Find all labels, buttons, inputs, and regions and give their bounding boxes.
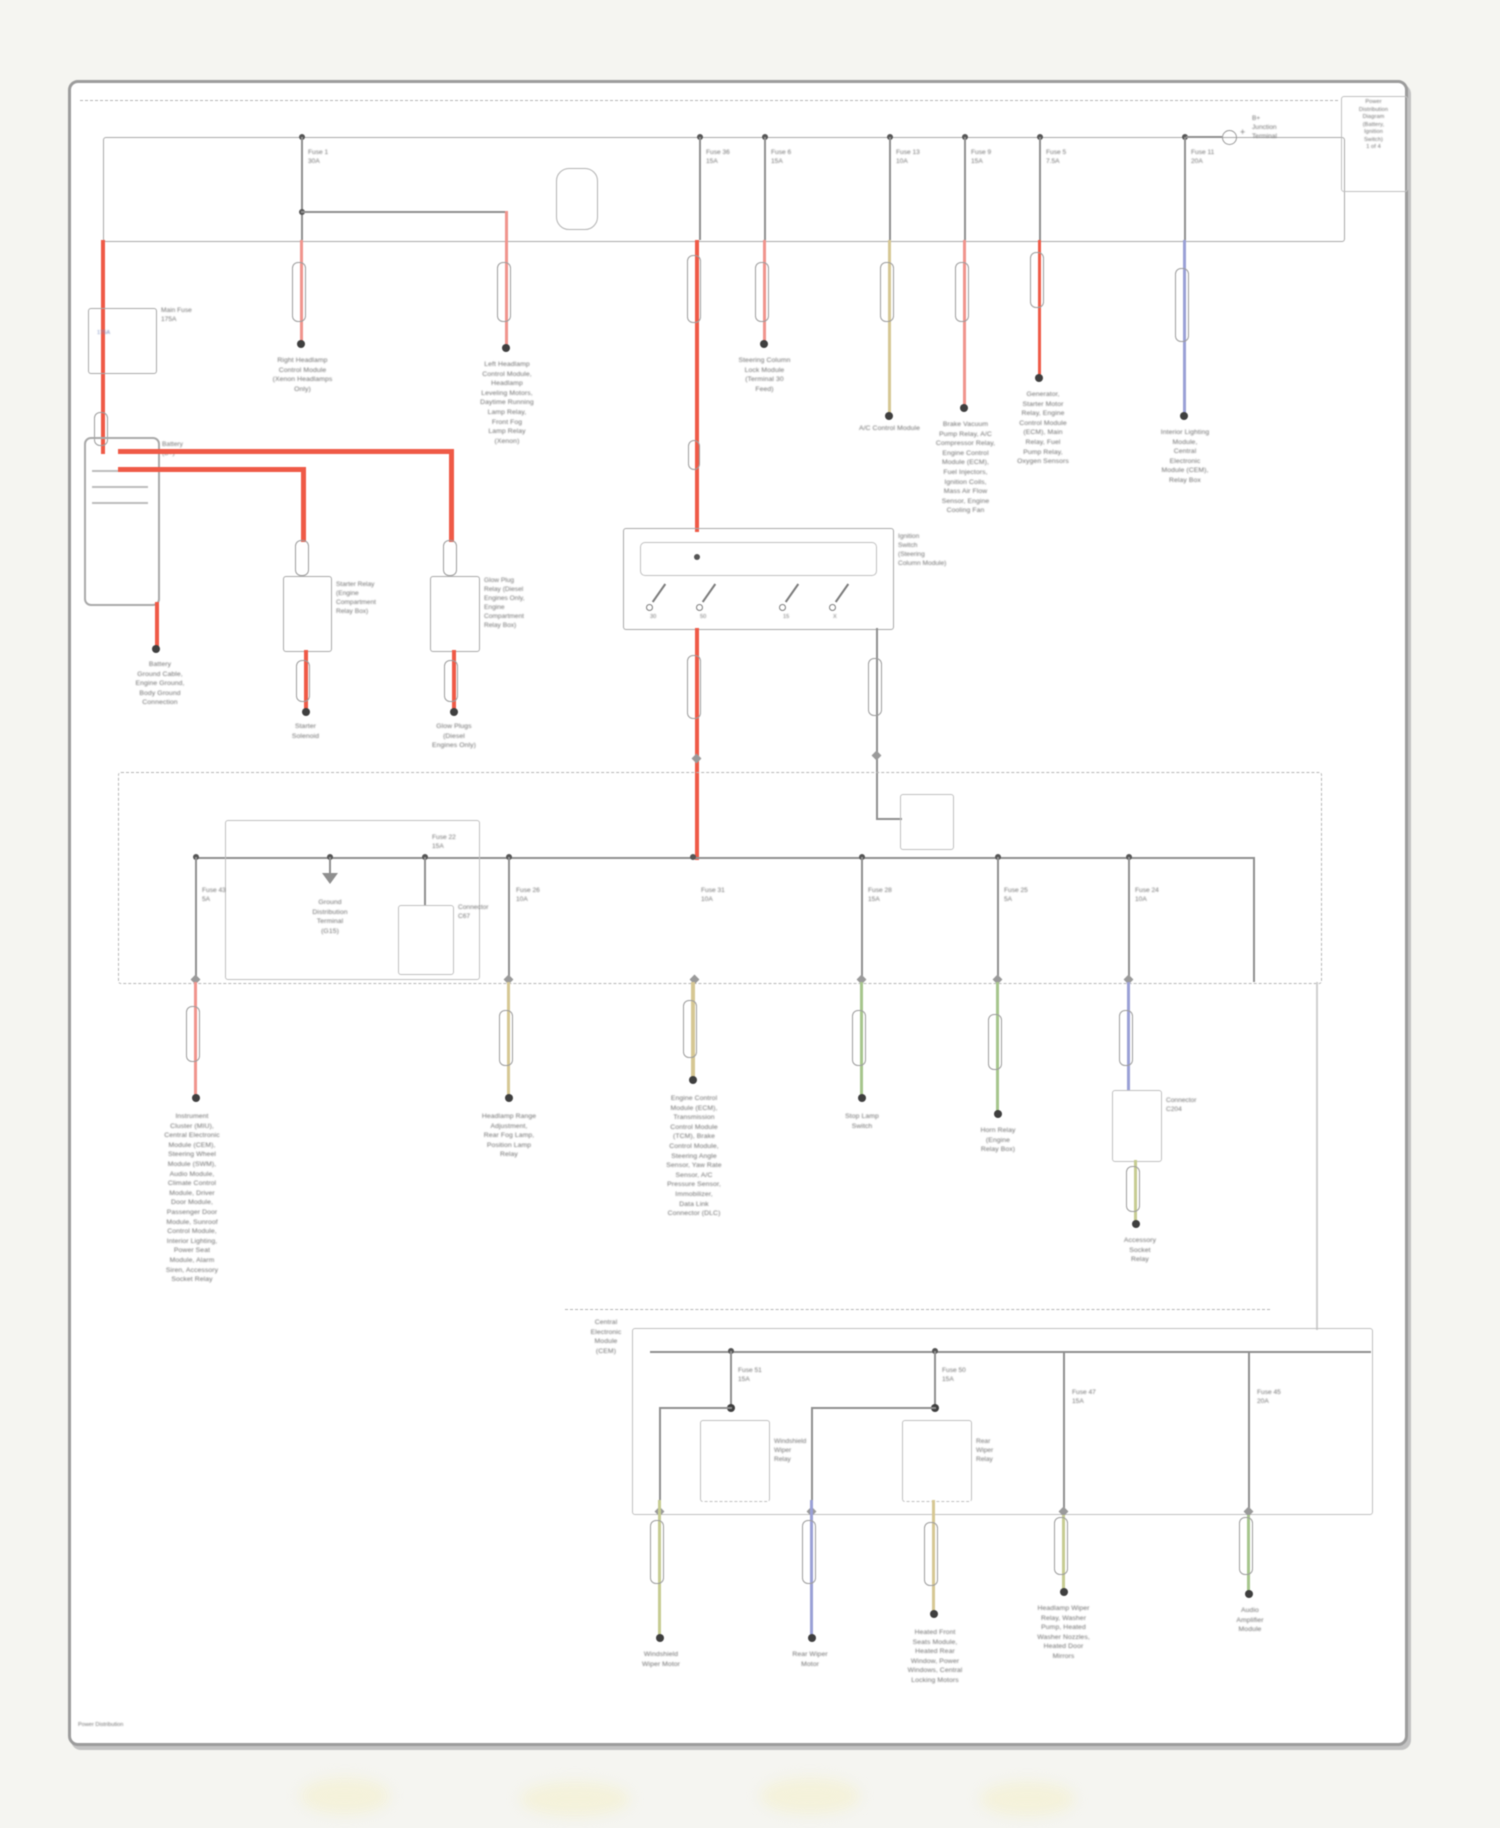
starter-relay-label: Starter Relay (Engine Compartment Relay … [336, 580, 428, 616]
terminal-dot [1245, 1590, 1253, 1598]
fuse-label: Fuse 47 15A [1072, 1388, 1120, 1406]
rear-wiper-relay-box [902, 1420, 972, 1502]
fuse-symbol [687, 255, 701, 323]
switch-contact [696, 604, 703, 611]
load-label: Left Headlamp Control Module, Headlamp L… [428, 360, 586, 446]
ground-label: Ground Distribution Terminal (G15) [286, 898, 374, 936]
ground-label: Battery Ground Cable, Engine Ground, Bod… [86, 660, 234, 708]
ignition-inner-box [640, 542, 877, 576]
watermark-blob [760, 1778, 860, 1814]
fuse-label: Fuse 25 5A [1004, 886, 1052, 904]
terminal-dot [450, 708, 458, 716]
fuse-symbol [1054, 1517, 1068, 1575]
main-fuse-box [88, 308, 157, 374]
wire [861, 857, 863, 982]
connector-label: Connector C204 [1166, 1096, 1236, 1114]
wire [764, 137, 766, 240]
fuse-symbol [688, 440, 700, 470]
fuse-label: Fuse 6 15A [771, 148, 823, 166]
ignition-switch-label: Ignition Switch (Steering Column Module) [898, 532, 993, 568]
fuse-symbol [499, 1010, 513, 1066]
fuse-symbol [1175, 268, 1189, 342]
fuse-label: Fuse 9 15A [971, 148, 1023, 166]
connector-box [1112, 1090, 1162, 1162]
fuse-symbol [755, 262, 769, 322]
wiring-diagram-page: Power Distribution Diagram (Battery, Ign… [0, 0, 1500, 1828]
fuse-symbol [852, 1010, 866, 1066]
terminal-dot [1060, 1588, 1068, 1596]
bplus-label: B+ Junction Terminal [1252, 114, 1338, 141]
fuse-symbol [296, 660, 310, 702]
fuse-symbol [683, 1000, 697, 1058]
terminal-label: X [833, 614, 837, 622]
switch-contact [646, 604, 653, 611]
main-fuse-label: Main Fuse 175A [161, 306, 256, 324]
fuse-label: Fuse 51 15A [738, 1366, 786, 1384]
terminal-dot [994, 1110, 1002, 1118]
load-label: Windshield Wiper Motor [606, 1650, 716, 1669]
terminal-dot [502, 344, 510, 352]
fuse-label: Fuse 50 15A [942, 1366, 990, 1384]
fuse-symbol [186, 1006, 200, 1062]
terminal-label: 30 [650, 614, 656, 622]
ground-icon [322, 873, 338, 884]
load-label: Headlamp Wiper Relay, Washer Pump, Heate… [986, 1604, 1141, 1662]
fuse-symbol [295, 540, 309, 576]
terminal-dot [1180, 412, 1188, 420]
load-label: Engine Control Module (ECM), Transmissio… [600, 1094, 788, 1219]
fuse-symbol [868, 658, 882, 716]
fuse-symbol [650, 1520, 664, 1584]
fuse-label: Fuse 31 10A [701, 886, 749, 904]
plus-icon: + [1240, 128, 1245, 137]
terminal-dot [960, 404, 968, 412]
main-fuse-rating: 175A [97, 330, 110, 338]
fuse-symbol [1126, 1166, 1140, 1212]
terminal-dot [808, 1634, 816, 1642]
terminal-dot [656, 1634, 664, 1642]
load-label: Horn Relay (Engine Relay Box) [944, 1126, 1052, 1155]
wire [811, 1407, 813, 1500]
load-label: Generator, Starter Motor Relay, Engine C… [972, 390, 1114, 467]
load-label: Audio Amplifier Module [1200, 1606, 1300, 1635]
fuse-symbol [924, 1522, 938, 1586]
terminal-dot [689, 1076, 697, 1084]
wire [659, 1407, 661, 1500]
load-label: Stop Lamp Switch [812, 1112, 912, 1131]
fuse-label: Fuse 24 10A [1135, 886, 1183, 904]
wire [329, 857, 331, 873]
fuse-symbol [802, 1520, 816, 1584]
glow-plug-relay-label: Glow Plug Relay (Diesel Engines Only, En… [484, 576, 579, 630]
wire-thick-red [449, 449, 454, 542]
fuse-label: Fuse 1 30A [308, 148, 360, 166]
footer-title: Power Distribution [78, 1722, 218, 1730]
terminal-dot [1035, 374, 1043, 382]
terminal-dot [302, 708, 310, 716]
load-label: Right Headlamp Control Module (Xenon Hea… [230, 356, 375, 394]
boundary-line [1316, 982, 1318, 1330]
wire [1039, 137, 1041, 240]
load-label: Accessory Socket Relay [1086, 1236, 1194, 1265]
load-label: Glow Plugs (Diesel Engines Only) [404, 722, 504, 751]
wire [155, 602, 159, 648]
watermark-blob [300, 1778, 390, 1814]
terminal-dot [760, 340, 768, 348]
corner-note: Power Distribution Diagram (Battery, Ign… [1343, 99, 1404, 152]
watermark-blob [520, 1782, 630, 1816]
wire [1063, 1351, 1065, 1515]
wire [889, 137, 891, 240]
terminal-dot [930, 1610, 938, 1618]
wiper-relay-box [700, 1420, 770, 1502]
battery-plate [92, 502, 148, 504]
terminal-dot [505, 1094, 513, 1102]
wire [1184, 137, 1186, 240]
load-label: Instrument Cluster (MIU), Central Electr… [92, 1112, 292, 1285]
wiper-relay-label: Windshield Wiper Relay [774, 1437, 839, 1464]
wire [1253, 857, 1255, 982]
fuse-symbol [444, 660, 458, 702]
fuse-label: Fuse 26 10A [516, 886, 564, 904]
load-label: Headlamp Range Adjustment, Rear Fog Lamp… [438, 1112, 580, 1160]
wire-thick-red [301, 467, 306, 542]
fuse-symbol [292, 262, 306, 322]
terminal-label: 50 [700, 614, 706, 622]
watermark-blob [980, 1782, 1075, 1816]
junction-dot [694, 554, 700, 560]
fuse-symbol [955, 262, 969, 322]
terminal-dot [858, 1094, 866, 1102]
wire [1186, 136, 1222, 138]
glow-plug-relay-box [430, 576, 480, 652]
fuse-symbol [687, 655, 701, 719]
fuse-label: Fuse 45 20A [1257, 1388, 1305, 1406]
fuse-label: Fuse 36 15A [706, 148, 758, 166]
lower-bus-wire [650, 1351, 1371, 1353]
fuse-label: Fuse 28 15A [868, 886, 916, 904]
dashed-line [565, 1309, 1270, 1310]
wire [699, 137, 701, 240]
wire [195, 857, 197, 982]
terminal-dot [885, 412, 893, 420]
wire-thick-red [118, 449, 454, 454]
load-label: Starter Solenoid [258, 722, 353, 741]
fuse-label: Fuse 13 10A [896, 148, 948, 166]
terminal-dot [192, 1094, 200, 1102]
wire [301, 211, 507, 213]
load-label: Rear Wiper Motor [760, 1650, 860, 1669]
connector-symbol [556, 168, 598, 230]
fuse-symbol [1119, 1010, 1133, 1066]
wire [997, 857, 999, 982]
battery-plate [92, 486, 148, 488]
terminal-label: 15 [783, 614, 789, 622]
wire [301, 137, 303, 240]
fuse-label: Fuse 5 7.5A [1046, 148, 1098, 166]
fuse-symbol [988, 1014, 1002, 1070]
fuse-label: Fuse 43 5A [202, 886, 250, 904]
fuse-symbol [443, 540, 457, 576]
connector-box [398, 905, 454, 975]
terminal-dot [152, 645, 160, 653]
wire-thick-red [118, 467, 306, 472]
junction-dot [690, 854, 696, 860]
switch-contact [829, 604, 836, 611]
fuse-symbol [880, 262, 894, 322]
wire [508, 857, 510, 982]
fuse-symbol [497, 262, 511, 322]
starter-relay-box [283, 576, 332, 652]
connector-label: Connector C67 [458, 903, 538, 921]
fuse-symbol [1239, 1517, 1253, 1575]
wire [660, 1407, 732, 1409]
bplus-terminal-icon [1222, 130, 1237, 145]
load-label: Steering Column Lock Module (Terminal 30… [697, 356, 832, 394]
wire [424, 857, 426, 905]
wire [812, 1407, 936, 1409]
wire [1248, 1351, 1250, 1515]
dashed-bus-line [80, 100, 1338, 101]
terminal-dot [297, 340, 305, 348]
battery-symbol [84, 437, 160, 606]
wire [964, 137, 966, 240]
rear-wiper-relay-label: Rear Wiper Relay [976, 1437, 1036, 1464]
wire [934, 1351, 936, 1409]
wire [1128, 857, 1130, 982]
fuse-label: Fuse 22 15A [432, 833, 480, 851]
load-label: Interior Lighting Module, Central Electr… [1126, 428, 1244, 486]
fuse-label: Fuse 11 20A [1191, 148, 1243, 166]
wire [730, 1351, 732, 1409]
fuse-symbol [1030, 252, 1044, 308]
terminal-dot [1132, 1220, 1140, 1228]
switch-contact [779, 604, 786, 611]
